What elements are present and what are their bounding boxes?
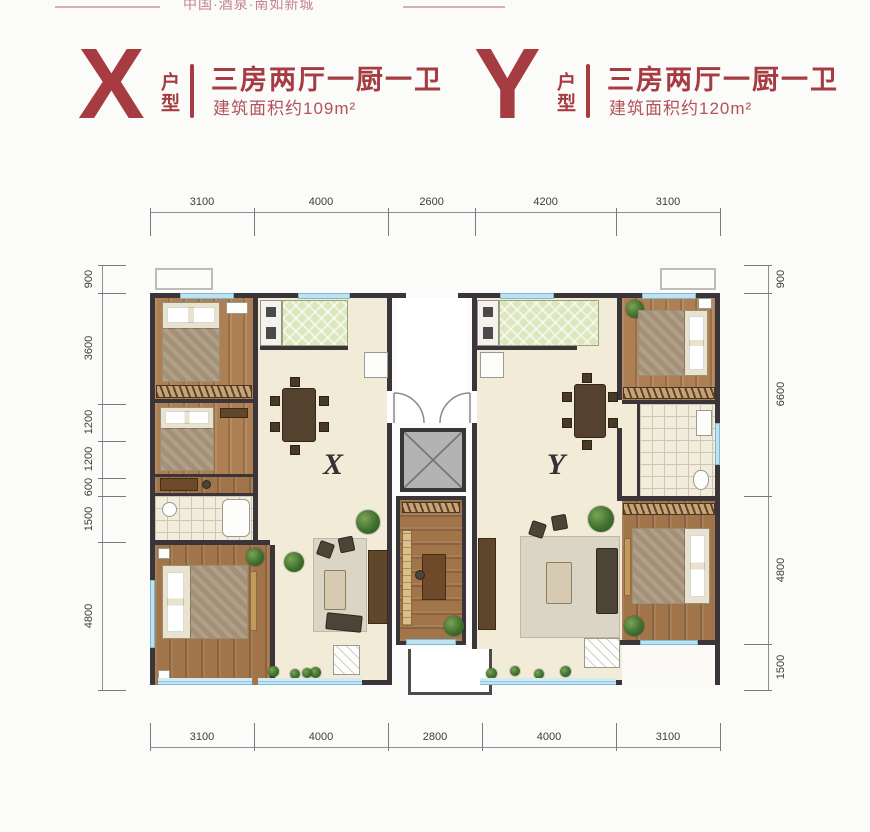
window-y-bedroom1 bbox=[642, 293, 696, 299]
plant-y-living bbox=[588, 506, 614, 532]
unit-x-letter: X bbox=[78, 34, 145, 134]
dining-chair-y bbox=[608, 392, 618, 402]
dim-right-tick bbox=[744, 496, 772, 497]
bench-y-master bbox=[624, 538, 631, 596]
toilet-y bbox=[693, 470, 709, 490]
unit-y-letter: Y bbox=[474, 34, 541, 134]
unit-y-divider-bar bbox=[586, 64, 590, 118]
plan-label-x: X bbox=[313, 448, 353, 488]
wall-y-column-lower bbox=[617, 428, 622, 501]
wall-y-kitchen bbox=[477, 346, 577, 350]
dim-left-label: 1200 bbox=[82, 402, 96, 442]
dim-right-tick bbox=[744, 690, 772, 691]
room-y-balcony-floor bbox=[622, 645, 715, 685]
wall-y-bath-master bbox=[617, 496, 715, 501]
dim-top-label: 4200 bbox=[526, 195, 566, 209]
washer-y bbox=[584, 638, 620, 668]
window-x-master-side bbox=[150, 580, 155, 648]
dim-left-label: 3600 bbox=[82, 328, 96, 368]
dim-top-label: 3100 bbox=[648, 195, 688, 209]
dim-left-tick bbox=[98, 293, 126, 294]
cabinet-y bbox=[480, 352, 504, 378]
dim-bottom-baseline bbox=[150, 747, 720, 748]
dim-right-label: 6600 bbox=[774, 374, 788, 414]
dim-left-tick bbox=[98, 441, 126, 442]
balcony-glazing-y-living bbox=[480, 678, 616, 685]
floorplan-page: 中国·酒泉·南如新城 X 户型 三房两厅一厨一卫 建筑面积约109m² Y 户型… bbox=[0, 0, 870, 832]
banner-project-name: 中国·酒泉·南如新城 bbox=[183, 0, 314, 12]
dim-right-tick bbox=[744, 644, 772, 645]
bed-y-master bbox=[632, 528, 710, 604]
dining-chair-y bbox=[562, 392, 572, 402]
ac-ledge-left bbox=[155, 268, 213, 290]
dim-top-tick bbox=[720, 208, 721, 236]
dim-left-tick bbox=[98, 478, 126, 479]
dim-top-label: 2600 bbox=[412, 195, 452, 209]
ac-ledge-right bbox=[660, 268, 716, 290]
unit-y-area-text: 建筑面积约120m² bbox=[609, 94, 752, 119]
wardrobe-y-master bbox=[623, 503, 715, 515]
balcony-plant-y bbox=[510, 666, 520, 676]
dim-bottom-tick bbox=[482, 723, 483, 751]
unit-y-layout-title: 三房两厅一厨一卫 bbox=[607, 58, 839, 97]
window-y-kitchen bbox=[500, 293, 554, 299]
dim-bottom-label: 2800 bbox=[415, 730, 455, 744]
dim-left-label: 4800 bbox=[82, 596, 96, 636]
unit-x-area-text: 建筑面积约109m² bbox=[213, 94, 356, 119]
tv-cabinet-y bbox=[478, 538, 496, 630]
wall-y-column-upper bbox=[617, 298, 622, 400]
dim-bottom-tick bbox=[720, 723, 721, 751]
dim-top-tick bbox=[150, 208, 151, 236]
dining-chair-y bbox=[608, 418, 618, 428]
sofa-y bbox=[596, 548, 618, 614]
dim-bottom-label: 4000 bbox=[529, 730, 569, 744]
dim-bottom-tick bbox=[616, 723, 617, 751]
window-y-bathroom-side bbox=[715, 423, 720, 465]
unit-y-type-suffix: 户型 bbox=[551, 72, 578, 114]
dim-top-baseline bbox=[150, 212, 720, 213]
kitchen-counter-y bbox=[499, 300, 599, 346]
dim-right-tick bbox=[744, 293, 772, 294]
dim-bottom-label: 4000 bbox=[301, 730, 341, 744]
dim-right-tick bbox=[744, 265, 772, 266]
dining-chair-y bbox=[562, 418, 572, 428]
dim-left-label: 900 bbox=[82, 259, 96, 299]
plant-y-master bbox=[624, 616, 644, 636]
dim-left-tick bbox=[98, 542, 126, 543]
bath-sink-y bbox=[696, 410, 712, 436]
window-x-kitchen bbox=[298, 293, 350, 299]
dim-top-tick bbox=[388, 208, 389, 236]
dim-bottom-tick bbox=[150, 723, 151, 751]
banner-right-line bbox=[403, 6, 505, 8]
dim-top-label: 3100 bbox=[182, 195, 222, 209]
wall-y-bed1-bath bbox=[622, 400, 715, 404]
unit-x-type-suffix: 户型 bbox=[155, 72, 182, 114]
window-x-bedroom1 bbox=[180, 293, 234, 299]
dim-left-tick bbox=[98, 404, 126, 405]
kitchen-sink-y bbox=[477, 300, 499, 346]
window-y-master-balcony bbox=[640, 640, 698, 645]
dining-table-y bbox=[574, 384, 606, 438]
dim-top-tick bbox=[254, 208, 255, 236]
dim-top-label: 4000 bbox=[301, 195, 341, 209]
dim-right-label: 1500 bbox=[774, 647, 788, 687]
dim-right-label: 4800 bbox=[774, 550, 788, 590]
balcony-glazing-x-living bbox=[258, 678, 362, 685]
brand-banner: 中国·酒泉·南如新城 bbox=[0, 0, 870, 12]
wardrobe-y-bedroom1 bbox=[623, 387, 715, 399]
dim-left-tick bbox=[98, 690, 126, 691]
balcony-glazing-x-master bbox=[158, 678, 252, 685]
dim-bottom-tick bbox=[254, 723, 255, 751]
dim-right-label: 900 bbox=[774, 259, 788, 299]
bed-y-bedroom1 bbox=[638, 310, 708, 376]
armchair-y-2 bbox=[551, 514, 568, 531]
floor-plan: X Y bbox=[150, 288, 720, 692]
dim-bottom-tick bbox=[388, 723, 389, 751]
dim-top-tick bbox=[475, 208, 476, 236]
dining-chair-y bbox=[582, 373, 592, 383]
dim-left-label: 1500 bbox=[82, 499, 96, 539]
dim-bottom-label: 3100 bbox=[648, 730, 688, 744]
banner-left-line bbox=[55, 6, 160, 8]
dining-chair-y bbox=[582, 440, 592, 450]
wall-y-hall-bath bbox=[637, 404, 640, 496]
nightstand-y-bedroom1 bbox=[698, 298, 712, 309]
balcony-plant-y bbox=[560, 666, 571, 677]
dim-bottom-label: 3100 bbox=[182, 730, 222, 744]
dim-top-tick bbox=[616, 208, 617, 236]
plan-label-y: Y bbox=[536, 448, 576, 488]
coffee-table-y bbox=[546, 562, 572, 604]
unit-x-divider-bar bbox=[190, 64, 194, 118]
dim-right-baseline bbox=[768, 265, 769, 690]
dim-left-tick bbox=[98, 265, 126, 266]
dim-left-tick bbox=[98, 496, 126, 497]
unit-x-layout-title: 三房两厅一厨一卫 bbox=[211, 58, 443, 97]
